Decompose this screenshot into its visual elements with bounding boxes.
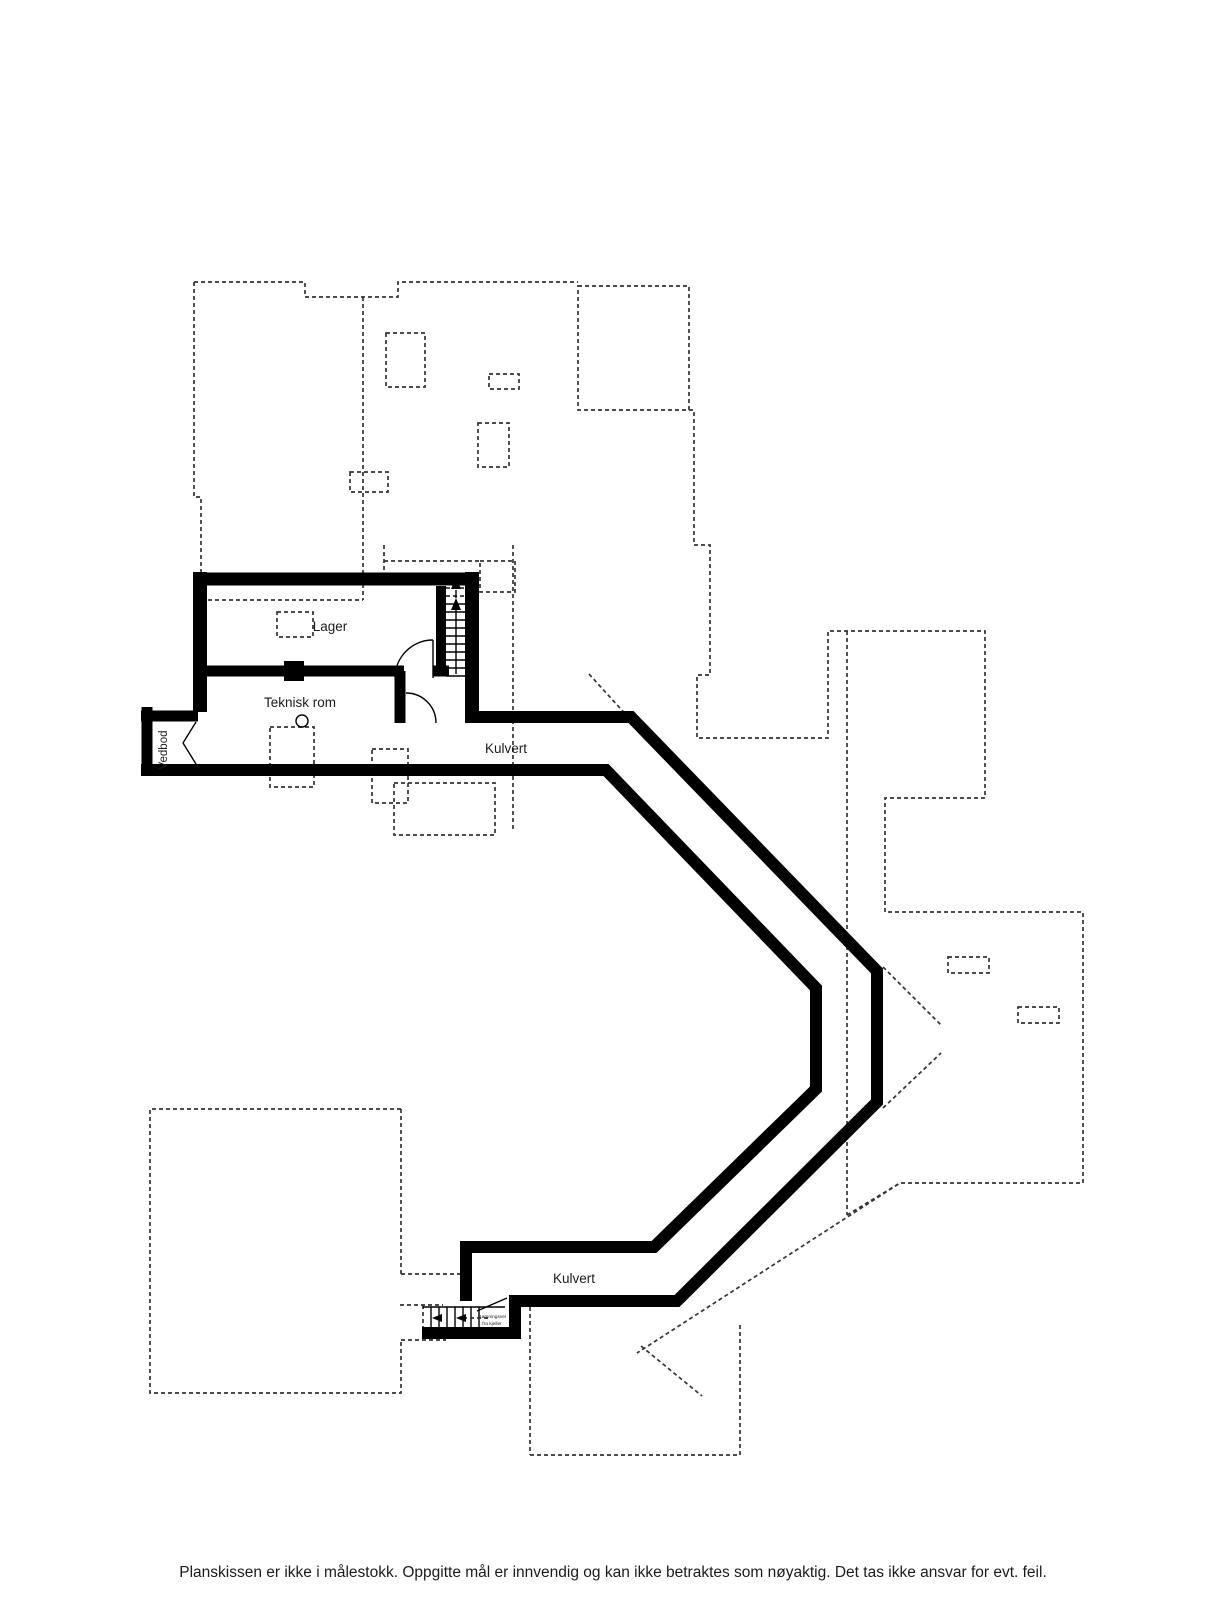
escape-note-line1: Rømningsvei xyxy=(478,1314,506,1320)
escape-note-line2: fra kjeller xyxy=(482,1321,502,1327)
upper-floor-outline-dashed xyxy=(150,282,1083,1455)
floorplan-svg: Rømningsvei fra kjeller Lager Teknisk ro… xyxy=(0,0,1226,1600)
room-label-kulvert-lower: Kulvert xyxy=(553,1271,595,1286)
disclaimer-text: Planskissen er ikke i målestokk. Oppgitt… xyxy=(179,1564,1047,1581)
chimney-pillar xyxy=(284,661,304,681)
room-label-lager: Lager xyxy=(313,619,348,634)
drain-symbol xyxy=(296,715,308,727)
floorplan-page: Rømningsvei fra kjeller Lager Teknisk ro… xyxy=(0,0,1226,1600)
door-arc-teknisk xyxy=(406,693,436,723)
room-label-kulvert-upper: Kulvert xyxy=(485,741,527,756)
staircase-upper xyxy=(446,577,465,676)
room-label-vedbod: Vedbod xyxy=(158,730,170,769)
room-label-teknisk-rom: Teknisk rom xyxy=(264,695,336,710)
basement-walls xyxy=(141,572,877,1333)
staircase-escape: Rømningsvei fra kjeller xyxy=(423,1298,507,1328)
vedbod-double-door xyxy=(183,722,196,764)
